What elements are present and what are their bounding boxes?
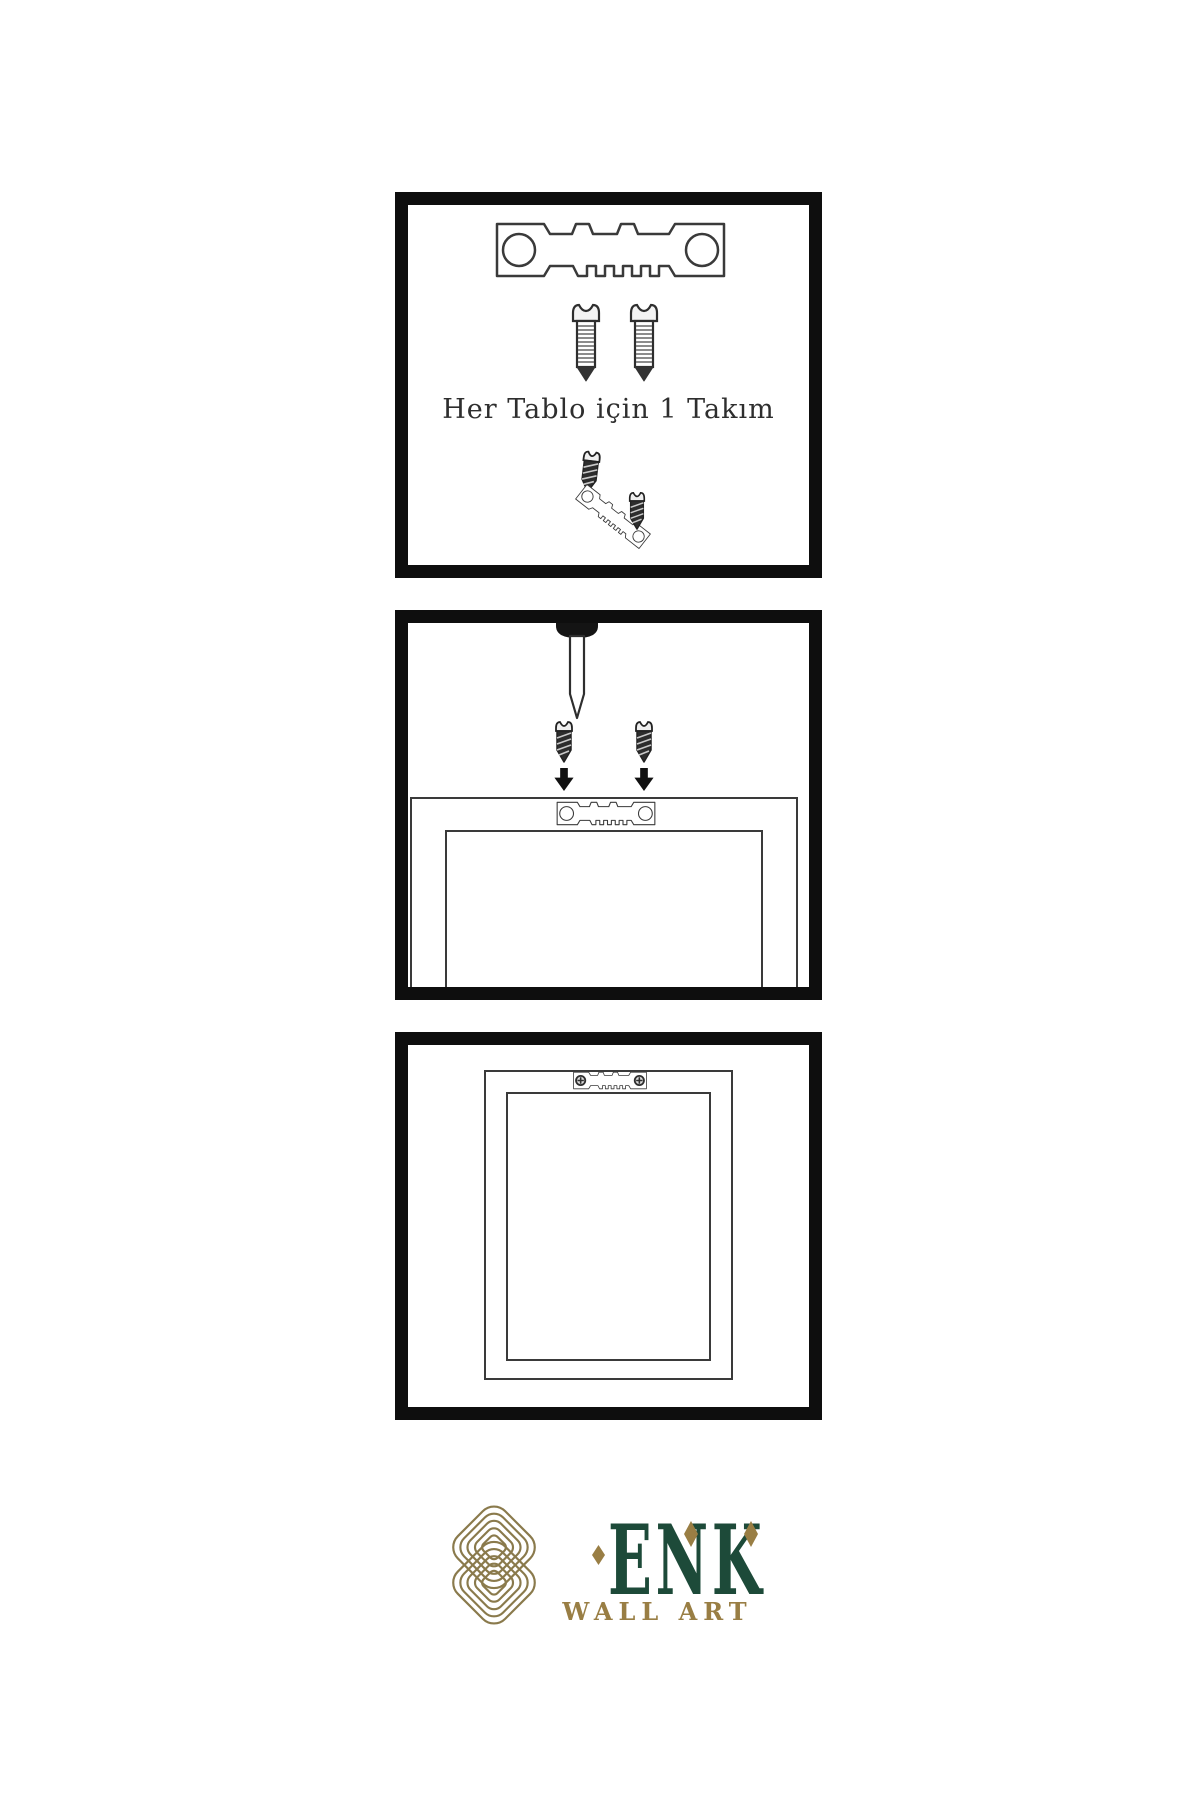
screw-icon [625,491,649,531]
wall-nail-icon [555,622,599,722]
diamond-accent-icon [592,1545,605,1565]
screw-icon [565,303,607,383]
step-2-panel [395,610,822,1000]
hanging-instruction-sheet: Her Tablo için 1 Takım ENK WALL ART [0,0,1200,1800]
frame-inner-outline [506,1092,711,1361]
knot-logo-icon [435,1499,553,1631]
brand-subtitle: WALL ART [560,1597,755,1626]
sawtooth-hanger-icon [492,221,729,279]
kit-caption: Her Tablo için 1 Takım [408,394,809,425]
down-arrow-icon [633,768,655,791]
down-arrow-icon [553,768,575,791]
frame-inner-outline [445,830,763,1000]
step-3-panel [395,1032,822,1420]
brand-name: ENK [608,1513,765,1609]
screw-icon [551,720,577,764]
step-1-panel: Her Tablo için 1 Takım [395,192,822,578]
sawtooth-hanger-screwed-icon [572,1071,648,1090]
sawtooth-hanger-icon [555,801,657,826]
screw-icon [631,720,657,764]
screw-icon [623,303,665,383]
